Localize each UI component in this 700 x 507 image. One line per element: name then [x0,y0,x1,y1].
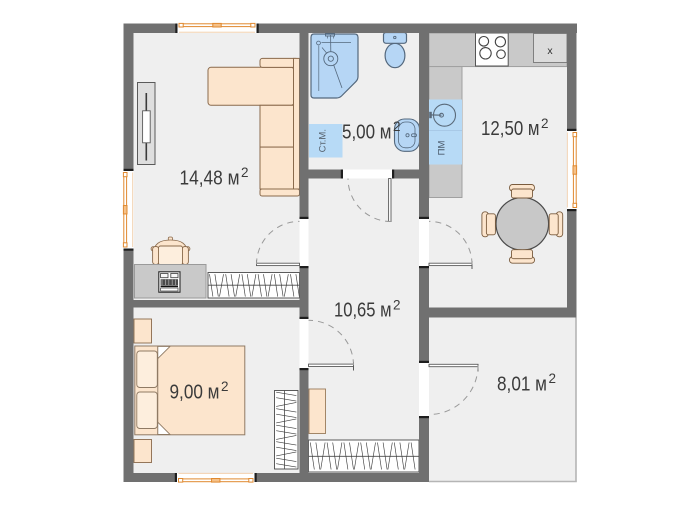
svg-text:2: 2 [541,116,549,131]
svg-text:2: 2 [393,119,401,134]
svg-text:ПМ: ПМ [437,141,448,156]
svg-text:14,48 м: 14,48 м [180,166,240,189]
svg-text:9,00 м: 9,00 м [170,381,220,404]
svg-text:5,00 м: 5,00 м [342,120,392,143]
svg-text:2: 2 [221,379,229,394]
svg-text:8,01 м: 8,01 м [497,372,547,395]
svg-text:2: 2 [393,297,401,312]
svg-text:Ст.М.: Ст.М. [318,129,329,152]
svg-text:x: x [547,45,553,57]
svg-text:10,65 м: 10,65 м [334,299,392,322]
svg-text:2: 2 [241,165,249,180]
svg-text:2: 2 [549,371,557,386]
svg-text:12,50 м: 12,50 м [481,117,540,140]
